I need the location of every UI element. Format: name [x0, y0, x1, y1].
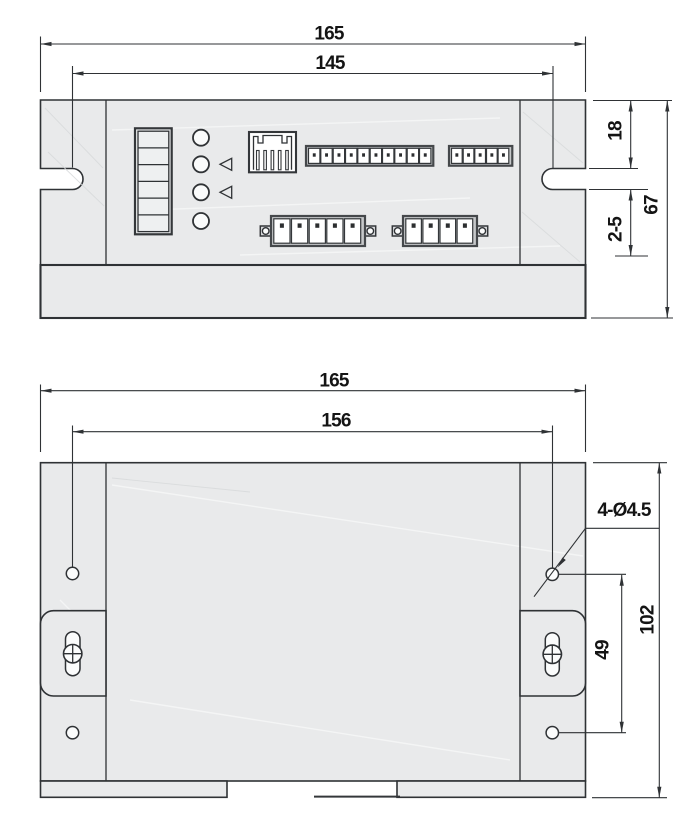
led-3 — [193, 184, 209, 200]
bottom-lip-right — [397, 781, 586, 797]
dim-label-hole-callout: 4-Ø4.5 — [597, 500, 652, 521]
dim-label-67: 67 — [642, 195, 663, 215]
ear-hole — [479, 228, 486, 235]
mounting-body-outline — [41, 463, 586, 781]
dip-switch — [135, 128, 172, 234]
technical-drawing-page: 165 145 18 2-5 67 — [0, 0, 699, 815]
mounting-hole-top-left — [66, 567, 78, 579]
dim-mounting-overall-width: 165 — [41, 370, 586, 452]
dim-label-18: 18 — [606, 121, 627, 141]
led-4 — [193, 213, 209, 229]
driver-dimension-drawing: 165 145 18 2-5 67 — [0, 0, 699, 815]
led-2 — [193, 156, 209, 172]
front-view: 165 145 18 2-5 67 — [41, 24, 674, 319]
ear-hole — [394, 228, 401, 235]
dim-label-2-5: 2-5 — [606, 216, 627, 242]
dim-label-front-165: 165 — [314, 24, 345, 45]
dim-label-49: 49 — [593, 640, 614, 660]
front-base-strip — [41, 265, 586, 318]
screw-right — [543, 645, 561, 663]
ear-hole — [367, 228, 374, 235]
bottom-lip-left — [41, 781, 228, 797]
terminal-strip-5pin — [449, 146, 512, 166]
power-terminal-5pin — [260, 216, 375, 246]
dim-label-mounting-165: 165 — [319, 370, 350, 391]
dim-label-front-145: 145 — [315, 53, 346, 74]
screw-left — [63, 645, 81, 663]
ear-hole — [262, 228, 269, 235]
mounting-hole-bottom-right — [546, 727, 558, 739]
dim-front-overall-width: 165 — [41, 24, 586, 93]
mounting-view: 165 156 4-Ø4.5 49 102 — [41, 370, 668, 797]
led-1 — [193, 130, 209, 146]
power-terminal-4pin — [392, 216, 487, 246]
rj45-port — [249, 132, 296, 172]
dim-label-102: 102 — [638, 605, 659, 635]
dim-label-156: 156 — [321, 411, 351, 432]
terminal-strip-10pin — [306, 146, 433, 166]
mounting-hole-bottom-left — [66, 727, 78, 739]
dim-front-right-side: 18 2-5 67 — [589, 101, 673, 319]
